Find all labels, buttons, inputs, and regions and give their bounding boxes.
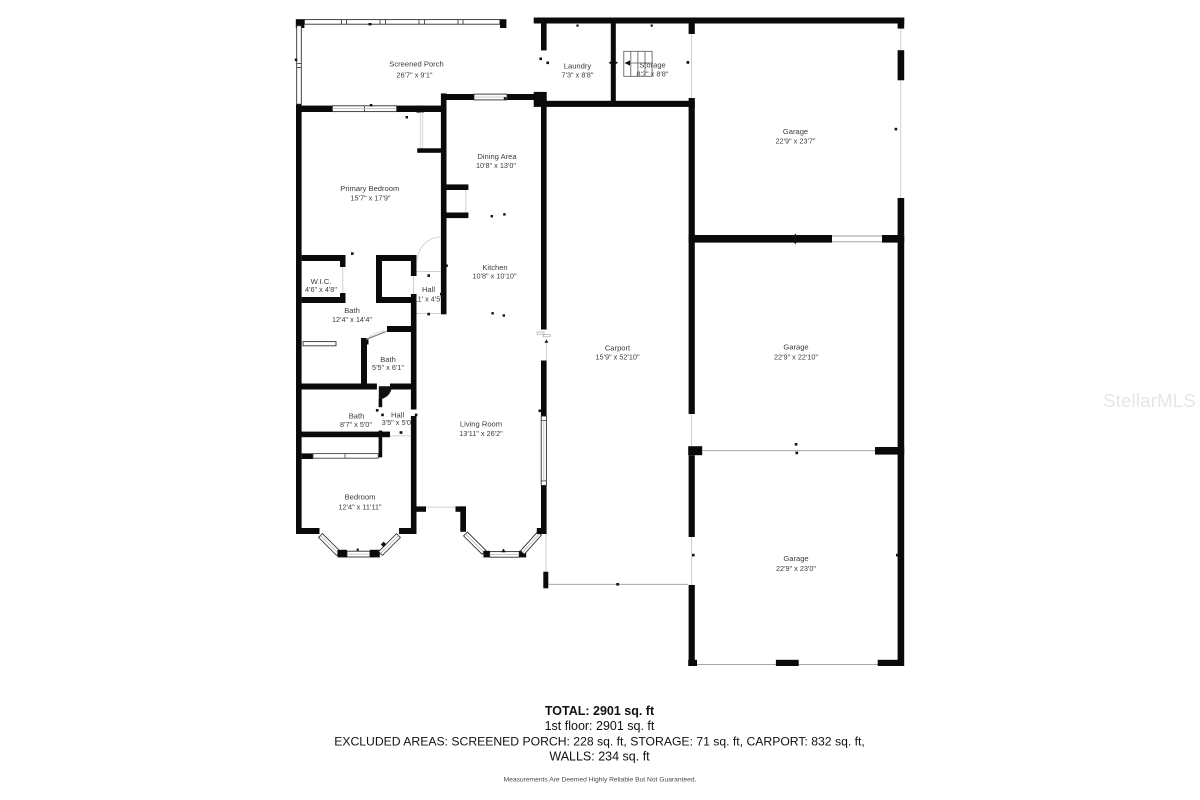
- svg-text:26'7" x 9'1": 26'7" x 9'1": [397, 71, 433, 80]
- svg-text:1st floor: 2901 sq. ft: 1st floor: 2901 sq. ft: [545, 719, 655, 733]
- svg-text:Storage: Storage: [639, 61, 666, 70]
- svg-text:Hall: Hall: [422, 285, 435, 294]
- svg-text:StellarMLS: StellarMLS: [1103, 390, 1196, 411]
- svg-text:5'5" x 6'1": 5'5" x 6'1": [372, 363, 404, 372]
- svg-text:12'4" x 11'11": 12'4" x 11'11": [339, 502, 382, 511]
- svg-text:4'6" x 4'8": 4'6" x 4'8": [305, 285, 337, 294]
- svg-text:8'7" x 5'0": 8'7" x 5'0": [340, 420, 372, 429]
- svg-text:Laundry: Laundry: [564, 62, 592, 71]
- svg-text:Measurements Are Deemed Highly: Measurements Are Deemed Highly Reliable …: [504, 777, 697, 784]
- svg-text:Primary Bedroom: Primary Bedroom: [340, 184, 399, 193]
- svg-text:Bedroom: Bedroom: [345, 493, 376, 502]
- svg-text:11' x 4'5": 11' x 4'5": [414, 295, 443, 304]
- svg-text:10'8" x 10'10": 10'8" x 10'10": [472, 271, 516, 280]
- svg-text:Garage: Garage: [783, 343, 808, 352]
- svg-text:Garage: Garage: [783, 127, 808, 136]
- svg-text:3'5" x 5'0": 3'5" x 5'0": [382, 418, 414, 427]
- svg-text:22'9" x 22'10": 22'9" x 22'10": [774, 353, 818, 362]
- svg-text:15'7" x 17'9": 15'7" x 17'9": [350, 193, 390, 202]
- svg-text:7'3" x 8'8": 7'3" x 8'8": [562, 71, 594, 80]
- svg-text:22'9" x 23'7": 22'9" x 23'7": [775, 136, 815, 145]
- svg-text:12'4" x 14'4": 12'4" x 14'4": [332, 315, 372, 324]
- svg-text:10'8" x 13'0": 10'8" x 13'0": [476, 161, 516, 170]
- svg-text:Living Room: Living Room: [460, 419, 502, 428]
- svg-text:13'11" x 26'2": 13'11" x 26'2": [459, 429, 503, 438]
- svg-text:8'2" x 8'8": 8'2" x 8'8": [637, 70, 669, 79]
- svg-text:EXCLUDED AREAS: SCREENED PORCH: EXCLUDED AREAS: SCREENED PORCH: 228 sq. …: [334, 734, 865, 748]
- svg-text:TOTAL: 2901 sq. ft: TOTAL: 2901 sq. ft: [545, 704, 655, 718]
- svg-text:Dining Area: Dining Area: [477, 152, 517, 161]
- svg-text:22'9" x 23'0": 22'9" x 23'0": [776, 564, 816, 573]
- svg-text:Carport: Carport: [605, 343, 631, 352]
- svg-text:Screened Porch: Screened Porch: [389, 60, 443, 69]
- svg-text:Garage: Garage: [783, 554, 808, 563]
- svg-text:15'9" x 52'10": 15'9" x 52'10": [595, 352, 639, 361]
- svg-text:Bath: Bath: [344, 306, 360, 315]
- svg-text:WALLS: 234 sq. ft: WALLS: 234 sq. ft: [549, 750, 650, 764]
